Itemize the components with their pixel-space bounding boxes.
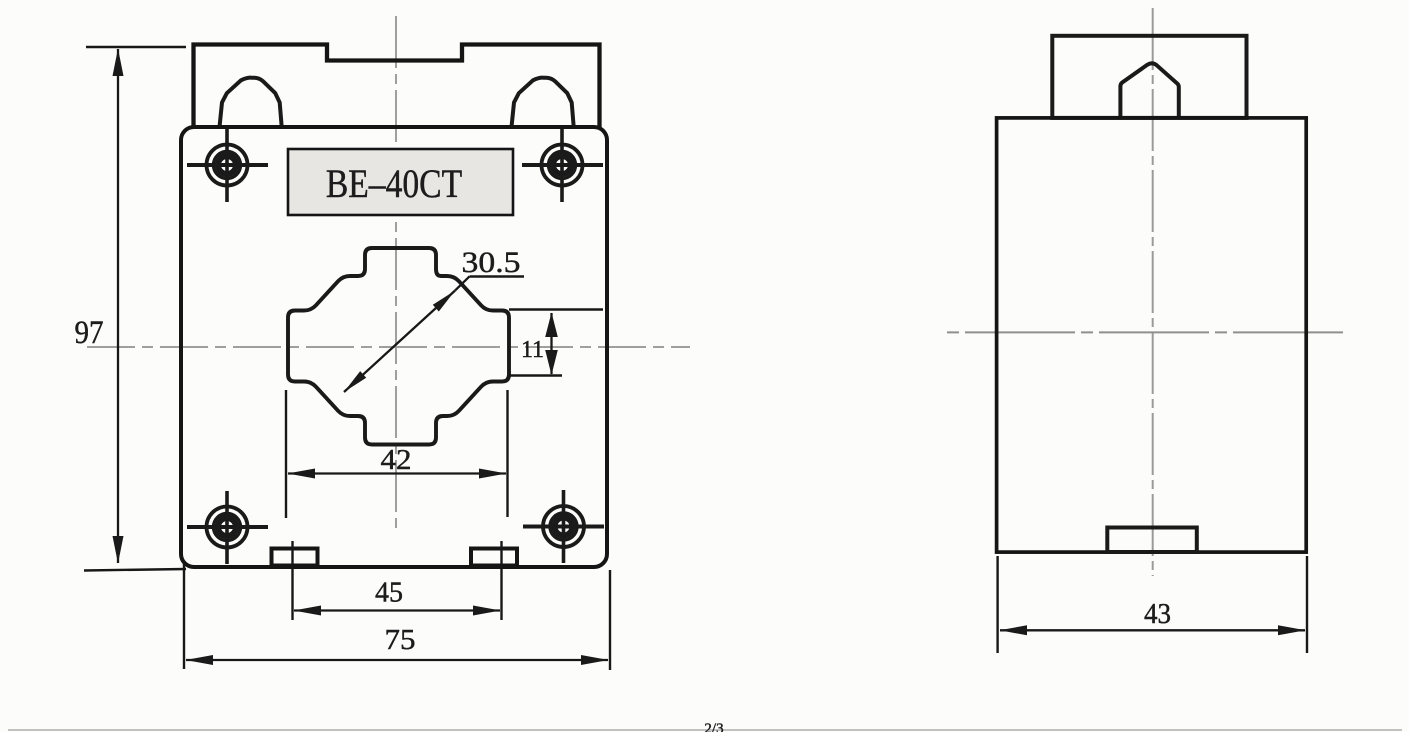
svg-text:BE–40CT: BE–40CT bbox=[326, 161, 462, 205]
svg-text:11: 11 bbox=[521, 337, 544, 363]
svg-text:45: 45 bbox=[375, 577, 403, 609]
svg-text:30.5: 30.5 bbox=[462, 246, 521, 279]
svg-text:43: 43 bbox=[1144, 598, 1171, 630]
svg-text:42: 42 bbox=[381, 444, 412, 476]
svg-text:75: 75 bbox=[385, 624, 416, 656]
svg-text:2/3: 2/3 bbox=[704, 721, 723, 732]
svg-text:97: 97 bbox=[75, 315, 104, 351]
